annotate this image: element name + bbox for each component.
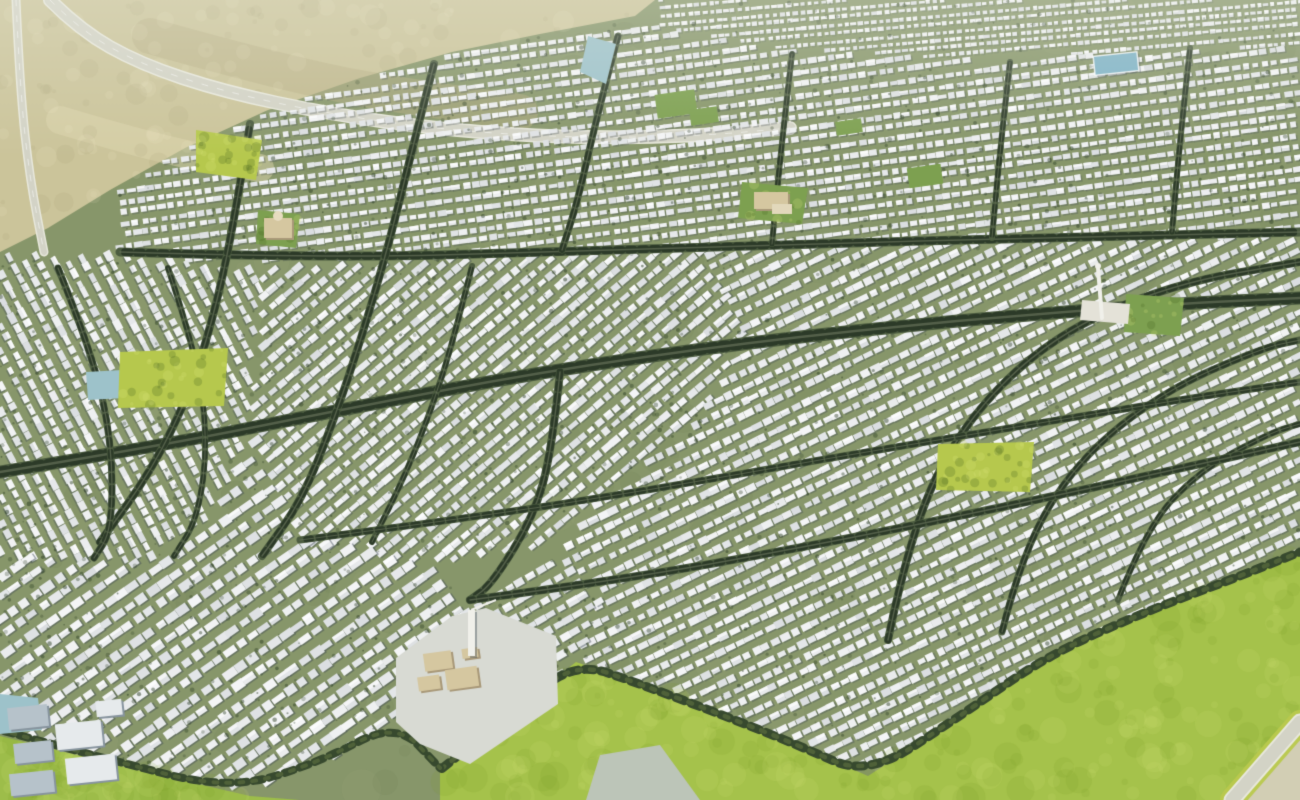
aerial-render-canvas	[0, 0, 1300, 800]
aerial-masterplan-render: Aerial rendering of a vast master-planne…	[0, 0, 1300, 800]
